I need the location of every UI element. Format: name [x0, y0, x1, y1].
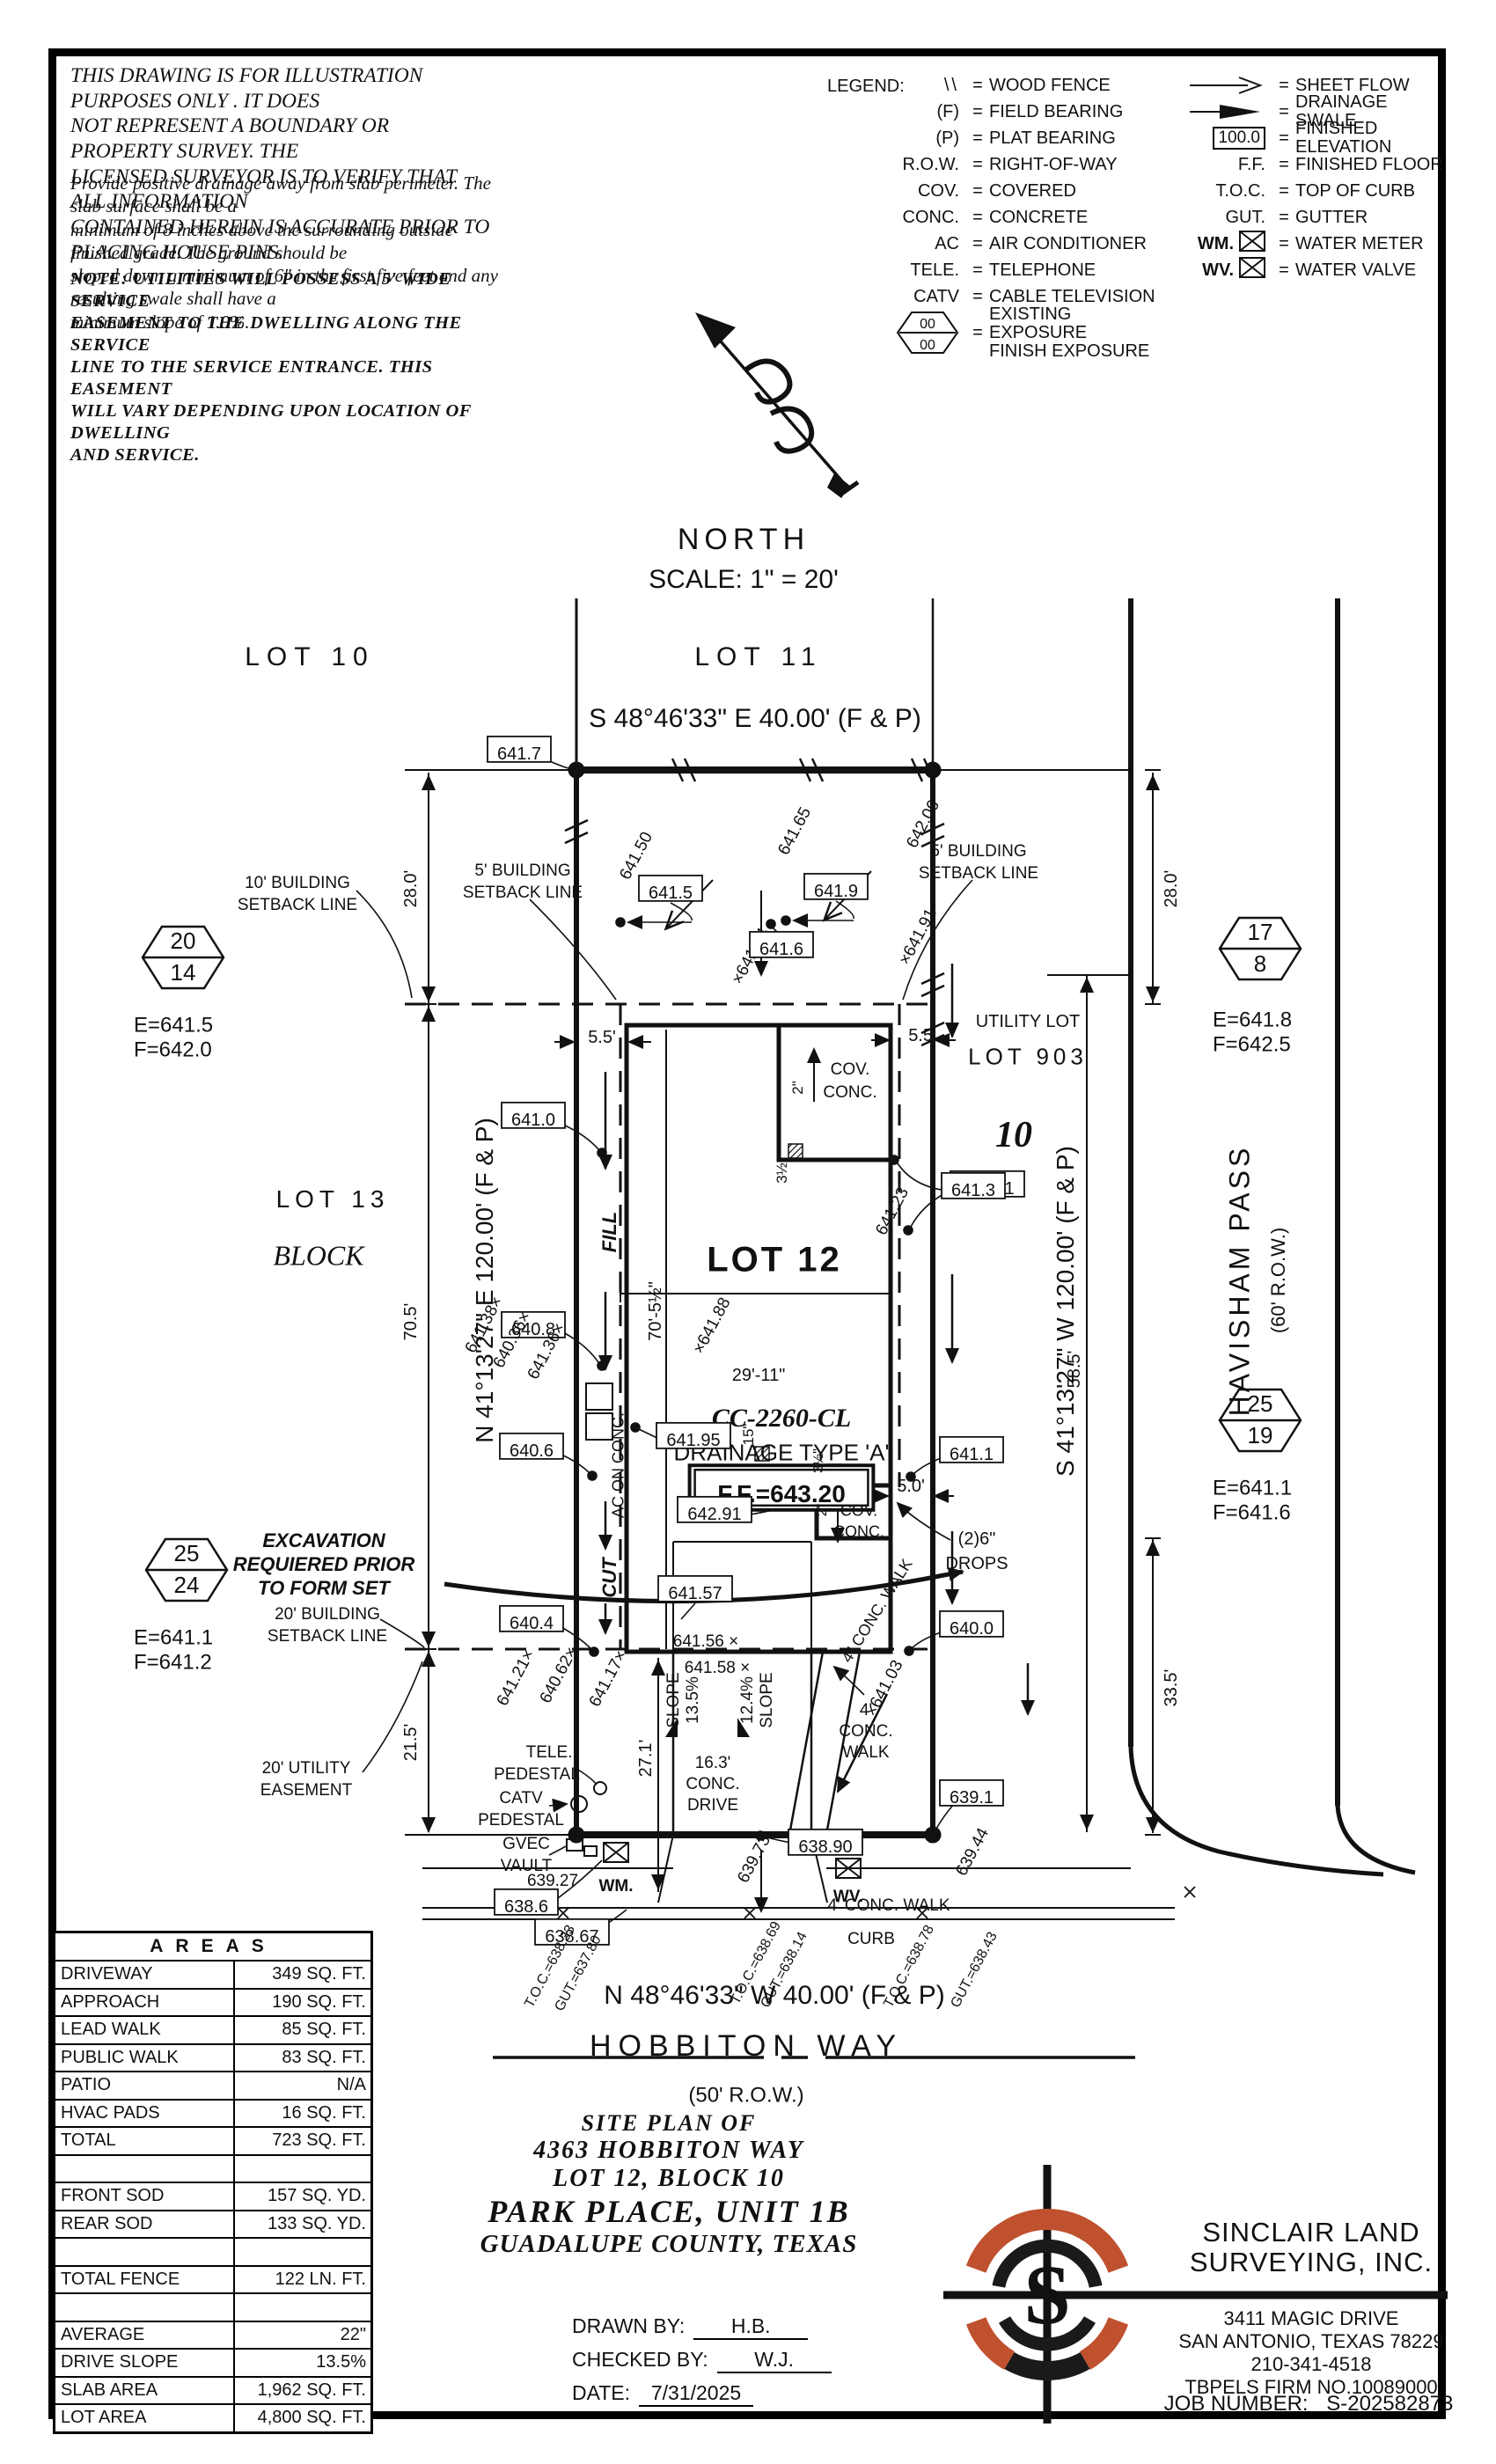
svg-text:638.6: 638.6: [504, 1897, 548, 1917]
svg-text:SCALE: 1" = 20': SCALE: 1" = 20': [649, 565, 839, 594]
svg-text:641.9: 641.9: [814, 882, 858, 901]
plan-label: 641.1: [940, 1437, 1003, 1464]
svg-text:REQUIERED PRIOR: REQUIERED PRIOR: [233, 1553, 415, 1575]
plan-label: 5.5': [908, 1026, 936, 1045]
svg-text:(2)6": (2)6": [958, 1529, 996, 1549]
svg-text:641.21×: 641.21×: [494, 1646, 539, 1709]
svg-text:SLOPE: SLOPE: [758, 1672, 776, 1727]
plan-label: 640.4: [500, 1606, 563, 1633]
plan-label: 12.4%: [738, 1676, 757, 1724]
table-row: TOTAL723 SQ. FT.: [55, 2128, 370, 2156]
svg-text:WM.: WM.: [598, 1877, 633, 1896]
plan-label: WALK: [842, 1743, 889, 1762]
table-cell-label: TOTAL: [55, 2128, 235, 2154]
plan-label: 641.56 ×: [673, 1632, 739, 1651]
svg-text:E=641.5: E=641.5: [134, 1014, 213, 1038]
date-row: DATE: 7/31/2025: [572, 2381, 889, 2407]
plan-label: CONC.: [823, 1083, 876, 1102]
table-cell-label: AVERAGE EXPOSURE: [55, 2322, 235, 2349]
svg-text:SETBACK LINE: SETBACK LINE: [238, 896, 357, 914]
table-cell-value: 85 SQ. FT.: [235, 2017, 370, 2043]
svg-text:641.6: 641.6: [759, 940, 803, 959]
plan-label: CONC.: [686, 1775, 739, 1793]
table-cell-value: N/A: [235, 2072, 370, 2099]
svg-text:E=641.1: E=641.1: [1213, 1477, 1292, 1500]
table-cell-label: DRIVE SLOPE: [55, 2350, 235, 2376]
exposure-hex-marker: 178: [1220, 918, 1301, 979]
svg-text:33.5': 33.5': [1162, 1669, 1181, 1707]
plan-label: E=641.1: [134, 1626, 213, 1650]
job-number-row: JOB NUMBER: S-202582873: [1163, 2392, 1454, 2416]
plan-label: SLOPE: [758, 1672, 776, 1727]
table-cell-label: TOTAL FENCE: [55, 2267, 235, 2293]
table-cell-label: PATIO: [55, 2072, 235, 2099]
plan-label: (60' R.O.W.): [1267, 1228, 1289, 1333]
plan-label: 640.0: [940, 1611, 1003, 1639]
credits-block: DRAWN BY: H.B. CHECKED BY: W.J. DATE: 7/…: [572, 2314, 889, 2415]
wood-fence-marks: [565, 759, 944, 1045]
svg-text:(50' R.O.W.): (50' R.O.W.): [688, 2084, 803, 2108]
plan-label: 641.65: [774, 804, 815, 858]
svg-text:EASEMENT: EASEMENT: [260, 1781, 353, 1800]
plan-label: 10: [995, 1115, 1032, 1155]
svg-text:COV.: COV.: [840, 1501, 877, 1519]
plan-label: S 41°13'27" W 120.00' (F & P): [1052, 1146, 1079, 1477]
svg-text:4': 4': [860, 1701, 872, 1720]
svg-text:5.5': 5.5': [588, 1028, 616, 1047]
plan-label: SLOPE: [664, 1672, 683, 1727]
svg-text:NORTH: NORTH: [678, 523, 810, 556]
svg-text:10' BUILDING: 10' BUILDING: [245, 874, 350, 892]
title-line-4: PARK PLACE, UNIT 1B: [387, 2193, 950, 2230]
plan-label: 28.0': [1162, 870, 1181, 908]
plan-label: GUT.=638.43: [948, 1930, 1001, 2011]
plan-label: EXCAVATION: [262, 1529, 385, 1551]
north-arrow-icon: [695, 312, 858, 498]
svg-text:28.0': 28.0': [1162, 870, 1181, 908]
plan-label: F=642.0: [134, 1038, 212, 1062]
plan-label: F=642.5: [1213, 1033, 1291, 1057]
svg-text:15": 15": [740, 1424, 757, 1446]
svg-text:16.3': 16.3': [695, 1754, 731, 1772]
svg-text:639.73: 639.73: [734, 1832, 774, 1886]
title-block: SITE PLAN OF 4363 HOBBITON WAY LOT 12, B…: [387, 2110, 950, 2259]
table-row: SLAB AREA1,962 SQ. FT.: [55, 2378, 370, 2406]
plan-label: 641.95: [656, 1423, 730, 1450]
plan-label: E=641.5: [134, 1014, 213, 1038]
svg-text:641.17×: 641.17×: [586, 1647, 631, 1710]
svg-text:DROPS: DROPS: [945, 1554, 1008, 1573]
svg-text:UTILITY LOT: UTILITY LOT: [976, 1012, 1081, 1031]
plan-label: 20' UTILITY: [262, 1759, 351, 1778]
areas-table-header: AREAS: [55, 1933, 370, 1962]
plan-label: 28.0': [401, 870, 421, 908]
plan-label: FILL: [598, 1212, 620, 1252]
svg-text:CONC.: CONC.: [686, 1775, 739, 1793]
svg-text:27.1': 27.1': [636, 1740, 656, 1778]
svg-text:14: 14: [171, 959, 196, 986]
svg-text:70.5': 70.5': [401, 1303, 421, 1341]
svg-text:CONC.: CONC.: [823, 1083, 876, 1102]
svg-text:641.1: 641.1: [950, 1445, 994, 1464]
table-row: PUBLIC WALK83 SQ. FT.: [55, 2045, 370, 2073]
plan-label: 13.5%: [684, 1676, 702, 1724]
svg-text:N 41°13'27" E 120.00' (F & P): N 41°13'27" E 120.00' (F & P): [471, 1118, 498, 1443]
table-cell-label: [55, 2294, 235, 2321]
title-line-2: 4363 HOBBITON WAY: [387, 2137, 950, 2165]
plan-label: 2": [815, 1504, 830, 1517]
table-cell-value: 13.5%: [235, 2350, 370, 2376]
plan-label: 641.9: [804, 874, 868, 901]
table-cell-value: 4,800 SQ. FT.: [235, 2405, 370, 2431]
svg-text:8: 8: [1254, 950, 1266, 977]
plan-label: CONC.: [839, 1722, 892, 1741]
svg-text:3½": 3½": [774, 1157, 790, 1184]
plan-label: LOT 10: [245, 642, 375, 671]
title-line-1: SITE PLAN OF: [387, 2110, 950, 2137]
table-cell-value: 190 SQ. FT.: [235, 1990, 370, 2016]
plan-label: N 41°13'27" E 120.00' (F & P): [471, 1118, 498, 1443]
plan-label: 5' BUILDING: [474, 862, 570, 880]
table-row: LOT AREA4,800 SQ. FT.: [55, 2405, 370, 2431]
svg-text:12.4%: 12.4%: [738, 1676, 757, 1724]
svg-text:642.91: 642.91: [687, 1505, 741, 1524]
plan-label: 642.91: [678, 1497, 752, 1524]
exposure-hex-marker: 2014: [143, 927, 224, 988]
svg-text:24: 24: [174, 1572, 200, 1598]
svg-text:640.0: 640.0: [950, 1619, 994, 1639]
svg-text:(60' R.O.W.): (60' R.O.W.): [1267, 1228, 1289, 1333]
plan-label: UTILITY LOT: [976, 1012, 1081, 1031]
table-row: [55, 2156, 370, 2184]
plan-label: SETBACK LINE: [463, 884, 583, 902]
svg-text:638.90: 638.90: [798, 1837, 852, 1857]
logo-letter: S: [1023, 2248, 1070, 2342]
plan-label: 639.44: [952, 1825, 993, 1880]
drawn-by-label: DRAWN BY:: [572, 2314, 685, 2338]
plan-label: 70.5': [401, 1303, 421, 1341]
table-row: HVAC PADS16 SQ. FT.: [55, 2101, 370, 2129]
plan-label: TELE.: [526, 1743, 573, 1762]
plan-label: DRIVE: [687, 1796, 738, 1815]
table-row: [55, 2294, 370, 2322]
table-row: APPROACH190 SQ. FT.: [55, 1990, 370, 2018]
table-cell-label: APPROACH: [55, 1990, 235, 2016]
table-cell-value: 16 SQ. FT.: [235, 2101, 370, 2127]
table-cell-label: [55, 2239, 235, 2265]
svg-text:641.3: 641.3: [951, 1181, 995, 1200]
svg-text:641.58 ×: 641.58 ×: [685, 1659, 751, 1677]
plan-label: 70'-5½": [646, 1281, 665, 1341]
plan-label: 638.90: [788, 1830, 862, 1857]
plan-label: 641.5: [639, 876, 702, 903]
svg-text:S 48°46'33" E 40.00' (F & P): S 48°46'33" E 40.00' (F & P): [589, 704, 921, 733]
plan-label: LOT 12: [707, 1240, 842, 1279]
plan-label: 641.21×: [494, 1646, 539, 1709]
svg-text:LOT 13: LOT 13: [276, 1185, 390, 1213]
table-row: TOTAL FENCE122 LN. FT.: [55, 2267, 370, 2295]
svg-text:2": 2": [789, 1081, 806, 1095]
svg-text:CURB: CURB: [847, 1930, 895, 1948]
svg-text:LOT 12: LOT 12: [707, 1240, 842, 1279]
table-cell-label: LEAD WALK: [55, 2017, 235, 2043]
plan-label: 29'-11": [732, 1366, 786, 1385]
plan-label: 5.5': [588, 1028, 616, 1047]
plan-label: E=641.8: [1213, 1008, 1292, 1032]
plan-label: 27.1': [636, 1740, 656, 1778]
svg-text:E=641.8: E=641.8: [1213, 1008, 1292, 1032]
svg-text:3½": 3½": [811, 1448, 826, 1473]
areas-table: AREAS DRIVEWAY349 SQ. FT.APPROACH190 SQ.…: [53, 1931, 373, 2434]
svg-text:SETBACK LINE: SETBACK LINE: [268, 1627, 387, 1646]
svg-text:4' CONC. WALK: 4' CONC. WALK: [827, 1896, 950, 1915]
table-row: PATION/A: [55, 2072, 370, 2101]
svg-text:58.5': 58.5': [1065, 1351, 1084, 1389]
plan-label: 16.3': [695, 1754, 731, 1772]
svg-text:HOBBITON WAY: HOBBITON WAY: [590, 2029, 903, 2063]
svg-text:641.56 ×: 641.56 ×: [673, 1632, 739, 1651]
svg-text:641.5: 641.5: [649, 884, 693, 903]
svg-text:641.57: 641.57: [668, 1584, 722, 1603]
table-row: REAR SOD133 SQ. YD.: [55, 2211, 370, 2240]
plan-label: F=641.2: [134, 1651, 212, 1675]
plan-label: 5.0': [897, 1477, 925, 1496]
plan-label: ×641.88: [690, 1294, 735, 1357]
svg-text:F=641.2: F=641.2: [134, 1651, 212, 1675]
svg-text:PEDESTAL: PEDESTAL: [494, 1765, 580, 1784]
plan-label: REQUIERED PRIOR: [233, 1553, 415, 1575]
table-cell-value: 83 SQ. FT.: [235, 2045, 370, 2072]
svg-text:×641.88: ×641.88: [690, 1294, 735, 1357]
svg-text:640.4: 640.4: [510, 1614, 554, 1633]
svg-text:20: 20: [171, 928, 196, 954]
svg-text:639.1: 639.1: [950, 1788, 994, 1808]
plan-label: SETBACK LINE: [919, 864, 1038, 883]
plan-label: 4': [860, 1701, 872, 1720]
svg-text:5.0': 5.0': [897, 1477, 925, 1496]
table-cell-value: [235, 2239, 370, 2265]
drawn-by-value: H.B.: [693, 2314, 808, 2340]
table-cell-value: 22": [235, 2322, 370, 2349]
svg-text:5' BUILDING: 5' BUILDING: [474, 862, 570, 880]
svg-text:639.44: 639.44: [952, 1825, 993, 1880]
svg-text:640.6: 640.6: [510, 1441, 554, 1461]
title-line-5: GUADALUPE COUNTY, TEXAS: [387, 2230, 950, 2259]
date-label: DATE:: [572, 2381, 630, 2405]
plan-label: (50' R.O.W.): [688, 2084, 803, 2108]
plan-label: TO FORM SET: [258, 1577, 391, 1599]
table-cell-value: 723 SQ. FT.: [235, 2128, 370, 2154]
firm-name: SINCLAIR LAND SURVEYING, INC.: [1170, 2218, 1452, 2277]
svg-text:DRIVE: DRIVE: [687, 1796, 738, 1815]
svg-text:CONC.: CONC.: [839, 1722, 892, 1741]
plan-label: 641.17×: [586, 1647, 631, 1710]
svg-text:COV.: COV.: [831, 1060, 870, 1079]
svg-text:CATV: CATV: [499, 1789, 543, 1808]
plan-label: BLOCK: [273, 1240, 365, 1272]
svg-text:641.0: 641.0: [511, 1111, 555, 1130]
table-cell-label: HVAC PADS: [55, 2101, 235, 2127]
site-plan-sheet: THIS DRAWING IS FOR ILLUSTRATION PURPOSE…: [0, 0, 1496, 2464]
plan-label: HOBBITON WAY: [590, 2029, 903, 2063]
plan-label: NORTH: [678, 523, 810, 556]
svg-text:GVEC: GVEC: [502, 1835, 550, 1853]
plan-label: CATV: [499, 1789, 543, 1808]
table-cell-label: REAR SOD: [55, 2211, 235, 2238]
svg-text:LOT 10: LOT 10: [245, 642, 375, 671]
plan-label: SETBACK LINE: [238, 896, 357, 914]
plan-label: HAVISHAM PASS: [1224, 1145, 1256, 1417]
plan-label: SCALE: 1" = 20': [649, 565, 839, 594]
plan-label: LOT 11: [694, 642, 822, 671]
svg-text:CUT: CUT: [598, 1557, 620, 1598]
plan-label: 641.58 ×: [685, 1659, 751, 1677]
checked-by-label: CHECKED BY:: [572, 2348, 708, 2372]
plan-label: LOT 13: [276, 1185, 390, 1213]
plan-label: 3½": [774, 1157, 790, 1184]
plan-label: 639.27: [527, 1872, 578, 1890]
table-cell-value: 122 LN. FT.: [235, 2267, 370, 2293]
plan-label: 639.1: [940, 1780, 1003, 1808]
plan-label: EASEMENT: [260, 1781, 353, 1800]
svg-text:SLOPE: SLOPE: [664, 1672, 683, 1727]
plan-label: 2": [789, 1081, 806, 1095]
table-cell-value: 349 SQ. FT.: [235, 1962, 370, 1988]
table-cell-label: PUBLIC WALK: [55, 2045, 235, 2072]
svg-text:21.5': 21.5': [401, 1724, 421, 1762]
checked-by-value: W.J.: [717, 2348, 832, 2373]
svg-text:641.65: 641.65: [774, 804, 815, 858]
svg-text:AC ON CONC.: AC ON CONC.: [609, 1412, 627, 1518]
table-cell-label: SLAB AREA: [55, 2378, 235, 2404]
plan-label: WM.: [598, 1877, 633, 1896]
plan-label: 641.57: [658, 1576, 732, 1603]
plan-label: (2)6": [958, 1529, 996, 1549]
plan-label: 641.6: [750, 932, 813, 959]
plan-label: SETBACK LINE: [268, 1627, 387, 1646]
svg-text:E=641.1: E=641.1: [134, 1626, 213, 1650]
svg-text:F=641.6: F=641.6: [1213, 1501, 1291, 1525]
table-cell-label: [55, 2156, 235, 2182]
plan-label: 58.5': [1065, 1351, 1084, 1389]
plan-label: E=641.1: [1213, 1477, 1292, 1500]
table-row: DRIVEWAY349 SQ. FT.: [55, 1962, 370, 1990]
title-line-3: LOT 12, BLOCK 10: [387, 2165, 950, 2193]
plan-label: S 48°46'33" E 40.00' (F & P): [589, 704, 921, 733]
svg-text:CC-2260-CL: CC-2260-CL: [712, 1404, 851, 1433]
table-cell-label: FRONT SOD: [55, 2183, 235, 2210]
plan-label: 21.5': [401, 1724, 421, 1762]
plan-label: PEDESTAL: [494, 1765, 580, 1784]
svg-text:N 48°46'33" W 40.00' (F & P): N 48°46'33" W 40.00' (F & P): [604, 1981, 945, 2010]
svg-text:25: 25: [174, 1540, 200, 1566]
plan-label: 15": [740, 1424, 757, 1446]
plan-label: F=641.6: [1213, 1501, 1291, 1525]
svg-text:28.0': 28.0': [401, 870, 421, 908]
date-value: 7/31/2025: [639, 2381, 753, 2407]
plan-label: CONC.: [833, 1522, 884, 1540]
table-row: DRIVE SLOPE13.5%: [55, 2350, 370, 2378]
svg-text:20' BUILDING: 20' BUILDING: [275, 1605, 380, 1624]
svg-text:70'-5½": 70'-5½": [646, 1281, 665, 1341]
plan-label: GVEC: [502, 1835, 550, 1853]
svg-text:EXCAVATION: EXCAVATION: [262, 1529, 385, 1551]
plan-label: LOT 903: [968, 1043, 1088, 1069]
checked-by-row: CHECKED BY: W.J.: [572, 2348, 889, 2373]
svg-text:2": 2": [815, 1504, 830, 1517]
svg-text:F=642.5: F=642.5: [1213, 1033, 1291, 1057]
job-number-value: S-202582873: [1326, 2392, 1453, 2416]
table-row: AVERAGE EXPOSURE22": [55, 2322, 370, 2350]
svg-text:SETBACK LINE: SETBACK LINE: [919, 864, 1038, 883]
svg-text:HAVISHAM PASS: HAVISHAM PASS: [1224, 1145, 1256, 1417]
plan-label: 3½": [811, 1448, 826, 1473]
plan-label: 639.73: [734, 1832, 774, 1886]
plan-label: 4' CONC. WALK: [827, 1896, 950, 1915]
svg-text:GUT.=638.43: GUT.=638.43: [948, 1930, 1001, 2011]
house-outline: [586, 1025, 891, 1652]
plan-label: AC ON CONC.: [609, 1412, 627, 1518]
svg-text:CONC.: CONC.: [833, 1522, 884, 1540]
svg-text:13.5%: 13.5%: [684, 1676, 702, 1724]
table-row: LEAD WALK85 SQ. FT.: [55, 2017, 370, 2045]
plan-label: COV.: [840, 1501, 877, 1519]
plan-label: N 48°46'33" W 40.00' (F & P): [604, 1981, 945, 2010]
svg-text:641.7: 641.7: [497, 744, 541, 764]
plan-label: 33.5': [1162, 1669, 1181, 1707]
plan-label: CC-2260-CL: [712, 1404, 851, 1433]
plan-label: 5' BUILDING: [930, 842, 1026, 861]
plan-label: 638.6: [495, 1889, 558, 1917]
plan-label: 10' BUILDING: [245, 874, 350, 892]
svg-text:TELE.: TELE.: [526, 1743, 573, 1762]
plan-label: 641.3: [942, 1173, 1005, 1200]
svg-text:WALK: WALK: [842, 1743, 889, 1762]
svg-text:PEDESTAL: PEDESTAL: [478, 1811, 564, 1830]
job-number-label: JOB NUMBER:: [1164, 2392, 1309, 2416]
table-cell-value: 157 SQ. YD.: [235, 2183, 370, 2210]
svg-text:S 41°13'27" W 120.00' (F & P): S 41°13'27" W 120.00' (F & P): [1052, 1146, 1079, 1477]
plan-label: CURB: [847, 1930, 895, 1948]
plan-label: COV.: [831, 1060, 870, 1079]
svg-text:BLOCK: BLOCK: [273, 1240, 365, 1272]
plan-label: DROPS: [945, 1554, 1008, 1573]
svg-text:29'-11": 29'-11": [732, 1366, 786, 1385]
firm-address: 3411 MAGIC DRIVE SAN ANTONIO, TEXAS 7822…: [1170, 2307, 1452, 2399]
svg-text:639.27: 639.27: [527, 1872, 578, 1890]
svg-text:5' BUILDING: 5' BUILDING: [930, 842, 1026, 861]
plan-label: CUT: [598, 1557, 620, 1598]
svg-text:641.95: 641.95: [666, 1431, 720, 1450]
table-cell-value: 133 SQ. YD.: [235, 2211, 370, 2238]
svg-text:TO FORM SET: TO FORM SET: [258, 1577, 391, 1599]
plan-label: 641.0: [502, 1103, 565, 1130]
svg-text:LOT 903: LOT 903: [968, 1043, 1088, 1069]
drawn-by-row: DRAWN BY: H.B.: [572, 2314, 889, 2340]
svg-text:F=642.0: F=642.0: [134, 1038, 212, 1062]
svg-text:19: 19: [1248, 1422, 1273, 1448]
svg-text:5.5': 5.5': [908, 1026, 936, 1045]
plan-label: 20' BUILDING: [275, 1605, 380, 1624]
table-cell-value: 1,962 SQ. FT.: [235, 2378, 370, 2404]
table-cell-label: LOT AREA: [55, 2405, 235, 2431]
svg-text:20' UTILITY: 20' UTILITY: [262, 1759, 351, 1778]
table-cell-value: [235, 2294, 370, 2321]
plan-label: 641.7: [488, 737, 551, 764]
svg-text:FILL: FILL: [598, 1212, 620, 1252]
exposure-hex-marker: 2524: [146, 1539, 227, 1601]
svg-text:SETBACK LINE: SETBACK LINE: [463, 884, 583, 902]
